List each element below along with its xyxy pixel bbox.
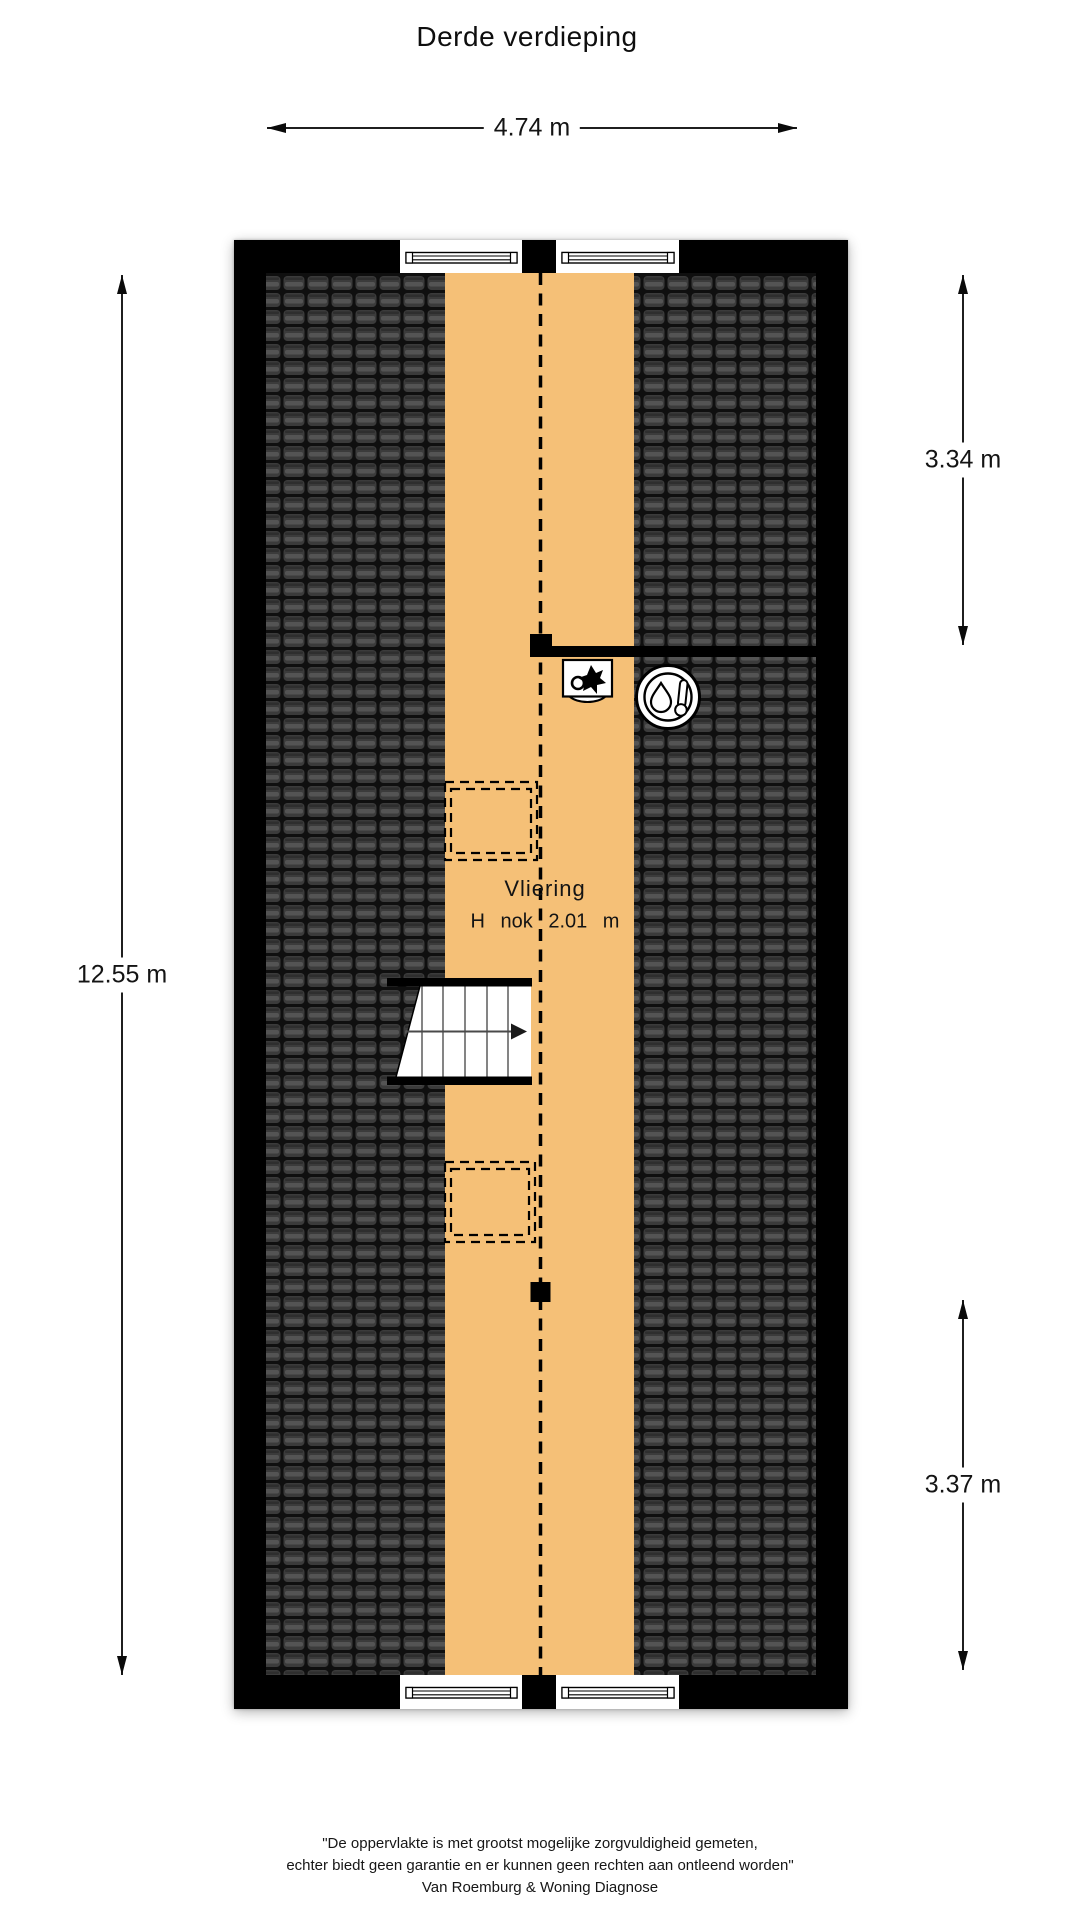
window-top-right: [556, 240, 679, 273]
arrowhead-right-icon: [778, 123, 797, 133]
dimension-width-top: 4.74 m: [267, 118, 797, 138]
window-bottom-left: [400, 1675, 522, 1709]
dimension-label-right-upper: 3.34 m: [915, 443, 1011, 478]
roof-plane-left: [266, 273, 445, 1675]
room-name: Vliering: [504, 876, 585, 902]
dimension-roof-right-upper: 3.34 m: [953, 275, 973, 645]
interior-wall: [531, 646, 848, 657]
boiler-icon: [637, 666, 700, 729]
page-title: Derde verdieping: [416, 21, 637, 53]
roof-plane-right: [634, 273, 816, 1675]
arrowhead-down-icon: [958, 1651, 968, 1670]
window-top-left: [400, 240, 522, 273]
arrowhead-up-icon: [958, 1300, 968, 1319]
arrowhead-down-icon: [117, 1656, 127, 1675]
disclaimer-line-3: Van Roemburg & Woning Diagnose: [0, 1877, 1080, 1899]
dimension-height-left: 12.55 m: [112, 275, 132, 1675]
ventilation-unit: [563, 660, 612, 702]
floorplan-drawing: [234, 240, 848, 1709]
dimension-label-right-lower: 3.37 m: [915, 1468, 1011, 1503]
floorplan: Vliering H nok 2.01 m: [234, 240, 848, 1709]
stair-wall-top: [387, 978, 532, 987]
disclaimer-line-2: echter biedt geen garantie en er kunnen …: [0, 1855, 1080, 1877]
arrowhead-up-icon: [117, 275, 127, 294]
stair-wall-bottom: [387, 1077, 532, 1086]
arrowhead-up-icon: [958, 275, 968, 294]
disclaimer-line-1: "De oppervlakte is met grootst mogelijke…: [0, 1833, 1080, 1855]
ridge-height-label: H nok 2.01 m: [471, 911, 620, 934]
arrowhead-left-icon: [267, 123, 286, 133]
dimension-label-top: 4.74 m: [484, 111, 580, 146]
dimension-roof-right-lower: 3.37 m: [953, 1300, 973, 1670]
wall-post-top: [530, 634, 552, 657]
disclaimer: "De oppervlakte is met grootst mogelijke…: [0, 1833, 1080, 1899]
dimension-label-left: 12.55 m: [67, 958, 177, 993]
floorplan-page: Derde verdieping 4.74 m 12.55 m 3.34 m 3…: [0, 0, 1080, 1920]
window-bottom-right: [556, 1675, 679, 1709]
ridge-post: [531, 1282, 551, 1302]
arrowhead-down-icon: [958, 626, 968, 645]
